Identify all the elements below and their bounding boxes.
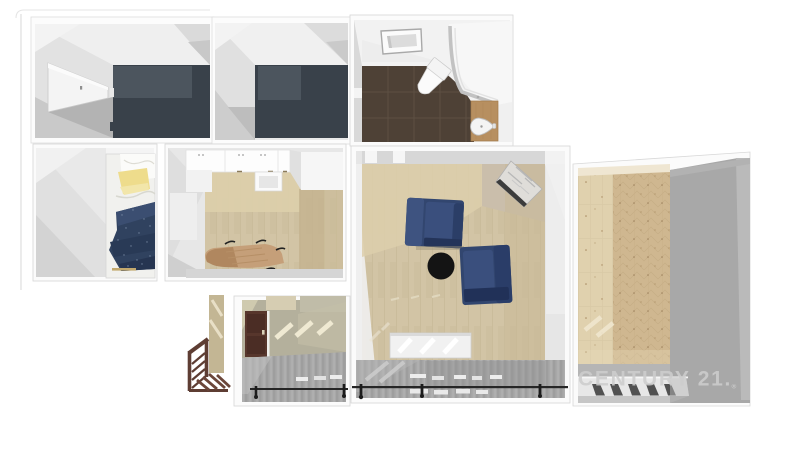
svg-text:®: ®	[732, 383, 737, 391]
svg-text:CENTURY 21.: CENTURY 21.	[578, 368, 732, 391]
